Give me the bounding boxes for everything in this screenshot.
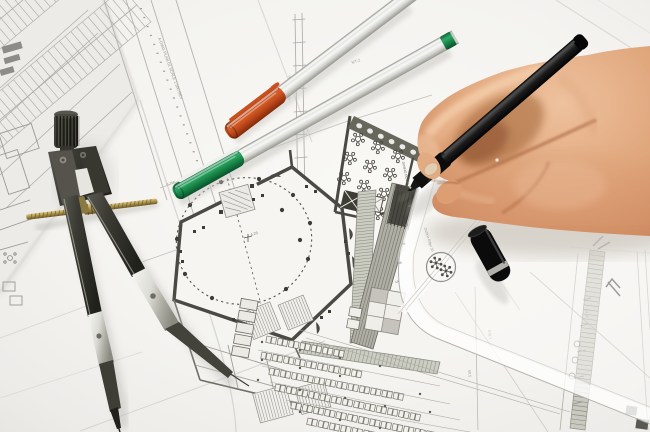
- svg-text:50.5: 50.5: [467, 370, 472, 378]
